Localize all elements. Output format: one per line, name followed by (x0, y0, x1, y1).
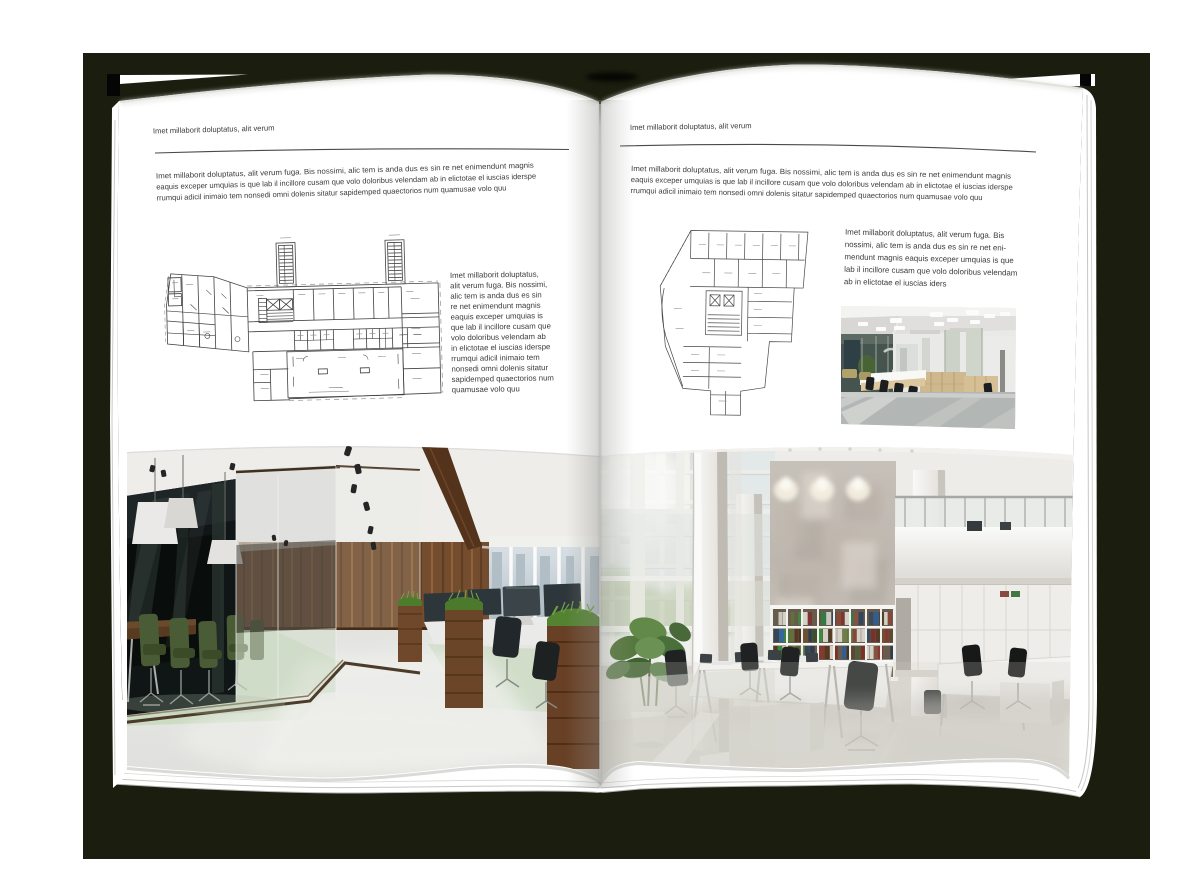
svg-text:sapidemped quaectorios num: sapidemped quaectorios num (452, 373, 554, 384)
svg-text:re net enimendunt magnis: re net enimendunt magnis (450, 301, 540, 311)
svg-text:alic tem is anda dus es sin: alic tem is anda dus es sin (450, 290, 542, 300)
svg-text:Imet millaborit doluptatus,: Imet millaborit doluptatus, (450, 270, 539, 280)
svg-text:nonsedi omni dolenis sitatur: nonsedi omni dolenis sitatur (451, 363, 548, 374)
svg-text:volo doloribus velendam ab: volo doloribus velendam ab (451, 332, 547, 343)
svg-text:rrumqui adicil inimaio tem: rrumqui adicil inimaio tem (451, 353, 540, 363)
svg-text:Imet millaborit doluptatus, al: Imet millaborit doluptatus, alit verum (630, 121, 752, 132)
svg-text:in elictotae el iuscias idersp: in elictotae el iuscias iderspe (451, 342, 550, 353)
svg-text:quamusae volo quu: quamusae volo quu (452, 384, 520, 394)
svg-text:alit verum fuga. Bis nossimi,: alit verum fuga. Bis nossimi, (450, 280, 547, 291)
svg-text:eaquis exceper umquias is: eaquis exceper umquias is (451, 311, 544, 321)
svg-text:que lab il incillore cusam que: que lab il incillore cusam que (451, 321, 551, 332)
